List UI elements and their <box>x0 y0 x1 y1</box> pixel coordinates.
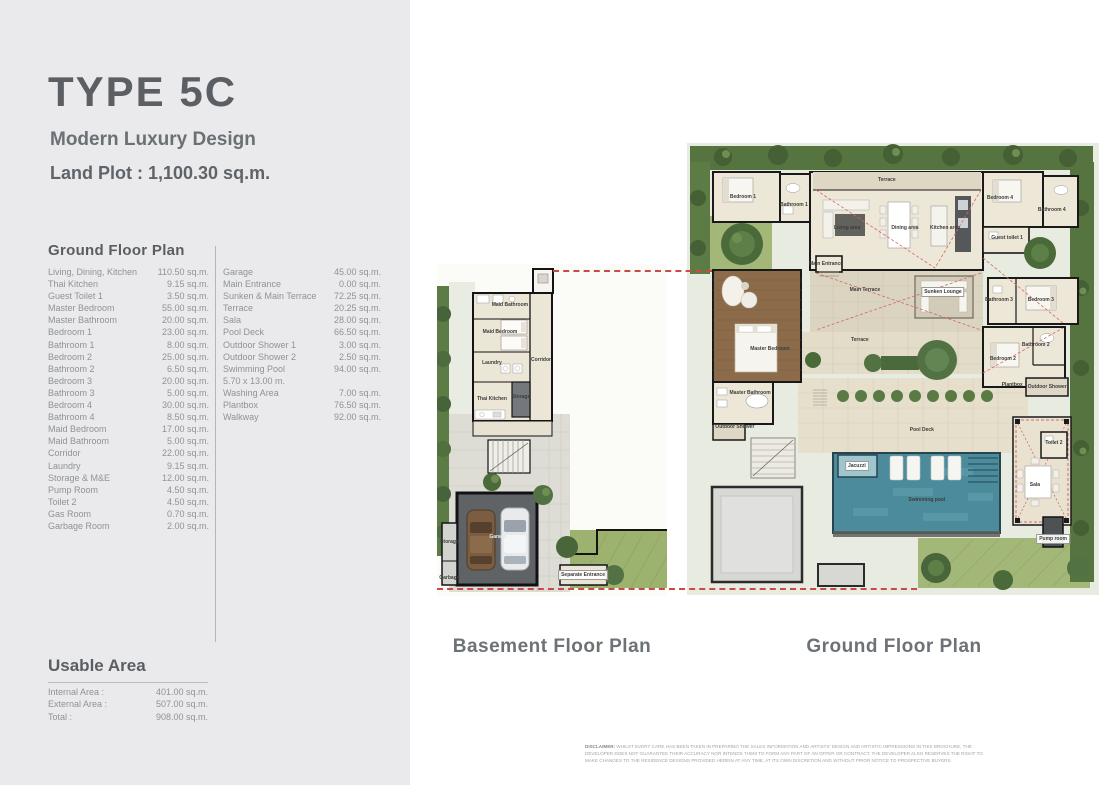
room-label: Dining area <box>891 225 918 231</box>
area-row: Plantbox76.50 sq.m. <box>223 399 381 411</box>
area-row-value: 401.00 sq.m. <box>156 686 208 698</box>
area-row-label: Terrace <box>223 302 253 314</box>
area-row-value: 20.25 sq.m. <box>334 302 381 314</box>
room-label: Outdoor Shower <box>715 424 754 430</box>
area-row-label: Washing Area <box>223 387 279 399</box>
area-row-label: Living, Dining, Kitchen <box>48 266 137 278</box>
room-label: Separate Entrance <box>558 570 608 580</box>
area-row-value: 22.00 sq.m. <box>162 447 209 459</box>
area-row-label: Laundry <box>48 460 81 472</box>
area-row-label: Outdoor Shower 2 <box>223 351 296 363</box>
room-label: Garbage <box>439 575 459 581</box>
area-row: Thai Kitchen9.15 sq.m. <box>48 278 209 290</box>
room-label: Sunken Lounge <box>921 287 965 297</box>
area-row-label: Garage <box>223 266 253 278</box>
area-table-heading: Ground Floor Plan <box>48 242 185 259</box>
area-row-value: 17.00 sq.m. <box>162 423 209 435</box>
room-label: Maid Bathroom <box>492 302 528 308</box>
area-row-label: Sunken & Main Terrace <box>223 290 316 302</box>
room-label: Corridor <box>531 357 551 363</box>
area-row: Laundry9.15 sq.m. <box>48 460 209 472</box>
room-label: Garage <box>489 534 506 540</box>
room-label: Terrace <box>878 177 896 183</box>
area-row-value: 0.70 sq.m. <box>167 508 209 520</box>
room-label: Bathroom 3 <box>985 297 1013 303</box>
room-label: Jacuzzi <box>845 461 869 471</box>
area-row-value: 4.50 sq.m. <box>167 496 209 508</box>
area-row-value: 2.00 sq.m. <box>167 520 209 532</box>
area-row-label: Plantbox <box>223 399 258 411</box>
area-row: Bedroom 430.00 sq.m. <box>48 399 209 411</box>
area-row: Pool Deck66.50 sq.m. <box>223 326 381 338</box>
area-row-value: 0.00 sq.m. <box>339 278 381 290</box>
area-row: 5.70 x 13.00 m. <box>223 375 381 387</box>
ground-plan-caption: Ground Floor Plan <box>683 636 1105 658</box>
section-line-dashed <box>553 270 712 272</box>
area-row-value: 72.25 sq.m. <box>334 290 381 302</box>
usable-area-rule <box>48 682 208 683</box>
room-label: Master Bathroom <box>730 390 771 396</box>
area-row-value: 66.50 sq.m. <box>334 326 381 338</box>
area-row-label: Outdoor Shower 1 <box>223 339 296 351</box>
area-row: Garbage Room2.00 sq.m. <box>48 520 209 532</box>
area-row: Guest Toilet 13.50 sq.m. <box>48 290 209 302</box>
area-row: Bathroom 18.00 sq.m. <box>48 339 209 351</box>
area-row-label: Guest Toilet 1 <box>48 290 103 302</box>
area-row-value: 20.00 sq.m. <box>162 375 209 387</box>
room-label: Bedroom 4 <box>987 195 1013 201</box>
area-row-label: Swimming Pool <box>223 363 285 375</box>
area-row: Walkway92.00 sq.m. <box>223 411 381 423</box>
area-row: Sunken & Main Terrace72.25 sq.m. <box>223 290 381 302</box>
room-label: Master Bedroom <box>750 346 789 352</box>
area-row-label: Maid Bathroom <box>48 435 109 447</box>
area-row-value: 4.50 sq.m. <box>167 484 209 496</box>
area-row-value: 110.50 sq.m. <box>158 266 209 278</box>
area-row-value: 94.00 sq.m. <box>334 363 381 375</box>
area-row: Gas Room0.70 sq.m. <box>48 508 209 520</box>
basement-plan-caption: Basement Floor Plan <box>437 636 667 658</box>
area-row: Corridor22.00 sq.m. <box>48 447 209 459</box>
room-label: Bedroom 1 <box>730 194 756 200</box>
area-row-label: Bathroom 1 <box>48 339 95 351</box>
area-row: Master Bathroom20.00 sq.m. <box>48 314 209 326</box>
room-label: Outdoor Shower <box>1028 384 1067 390</box>
area-row-label: Internal Area : <box>48 686 104 698</box>
area-row-label: Total : <box>48 711 72 723</box>
basement-labels: Maid BathroomMaid BedroomLaundryCorridor… <box>437 264 667 596</box>
room-label: Pool Deck <box>910 427 934 433</box>
area-row-label: Maid Bedroom <box>48 423 107 435</box>
area-row: Bathroom 26.50 sq.m. <box>48 363 209 375</box>
area-row-value: 76.50 sq.m. <box>334 399 381 411</box>
area-row-label: Bathroom 4 <box>48 411 95 423</box>
disclaimer-text: DISCLAIMER: WHILST EVERY CARE HAS BEEN T… <box>585 744 991 765</box>
area-row-value: 9.15 sq.m. <box>167 278 209 290</box>
room-label: Bedroom 2 <box>990 356 1016 362</box>
room-label: Maid Bedroom <box>483 329 518 335</box>
area-row-label: Toilet 2 <box>48 496 77 508</box>
usable-area-table: Internal Area :401.00 sq.m.External Area… <box>48 686 208 723</box>
area-row-value: 55.00 sq.m. <box>162 302 209 314</box>
area-row-label: 5.70 x 13.00 m. <box>223 375 285 387</box>
area-row: Main Entrance0.00 sq.m. <box>223 278 381 290</box>
area-table-col2: Garage45.00 sq.m.Main Entrance0.00 sq.m.… <box>223 266 381 423</box>
area-row-label: Pool Deck <box>223 326 264 338</box>
ground-floor-plan: TerraceBedroom 1Bathroom 1Living areaDin… <box>683 138 1105 622</box>
area-row: Maid Bedroom17.00 sq.m. <box>48 423 209 435</box>
area-row-label: Sala <box>223 314 241 326</box>
area-row: Terrace20.25 sq.m. <box>223 302 381 314</box>
room-label: Laundry <box>482 360 502 366</box>
area-row-label: Main Entrance <box>223 278 281 290</box>
area-row-value: 7.00 sq.m. <box>339 387 381 399</box>
room-label: Storage <box>512 394 531 400</box>
area-row: Living, Dining, Kitchen110.50 sq.m. <box>48 266 209 278</box>
column-divider <box>215 246 216 642</box>
area-row-label: External Area : <box>48 698 107 710</box>
area-row-label: Walkway <box>223 411 259 423</box>
area-row-value: 25.00 sq.m. <box>162 351 209 363</box>
area-row-label: Bathroom 2 <box>48 363 95 375</box>
area-row: Internal Area :401.00 sq.m. <box>48 686 208 698</box>
room-label: Sala <box>1030 482 1040 488</box>
area-row-label: Bedroom 4 <box>48 399 92 411</box>
area-row-value: 23.00 sq.m. <box>162 326 209 338</box>
area-row-label: Bedroom 1 <box>48 326 92 338</box>
area-row-value: 9.15 sq.m. <box>167 460 209 472</box>
usable-area-heading: Usable Area <box>48 656 146 676</box>
brochure-page: TYPE 5C Modern Luxury Design Land Plot :… <box>0 0 1111 785</box>
property-line-dashed <box>437 588 917 590</box>
area-row-value: 92.00 sq.m. <box>334 411 381 423</box>
area-row: Pump Room4.50 sq.m. <box>48 484 209 496</box>
room-label: Living area <box>834 225 860 231</box>
area-row-value: 6.50 sq.m. <box>167 363 209 375</box>
area-row-value: 8.00 sq.m. <box>167 339 209 351</box>
page-title: TYPE 5C <box>48 68 237 116</box>
disclaimer-label: DISCLAIMER: <box>585 744 615 749</box>
area-row: Toilet 24.50 sq.m. <box>48 496 209 508</box>
area-row-value: 2.50 sq.m. <box>339 351 381 363</box>
area-row-label: Bedroom 3 <box>48 375 92 387</box>
area-row: Washing Area7.00 sq.m. <box>223 387 381 399</box>
area-row: Outdoor Shower 13.00 sq.m. <box>223 339 381 351</box>
ground-labels: TerraceBedroom 1Bathroom 1Living areaDin… <box>683 138 1105 622</box>
room-label: Swimming pool <box>908 497 945 503</box>
area-row-label: Master Bedroom <box>48 302 115 314</box>
area-row-value: 5.00 sq.m. <box>167 387 209 399</box>
room-label: Main Terrace <box>850 287 880 293</box>
area-row-value: 45.00 sq.m. <box>334 266 381 278</box>
area-row: External Area :507.00 sq.m. <box>48 698 208 710</box>
area-row-label: Pump Room <box>48 484 98 496</box>
page-subtitle: Modern Luxury Design <box>50 129 256 151</box>
area-row: Bathroom 35.00 sq.m. <box>48 387 209 399</box>
area-row-value: 20.00 sq.m. <box>162 314 209 326</box>
area-row: Sala28.00 sq.m. <box>223 314 381 326</box>
area-row-label: Bathroom 3 <box>48 387 95 399</box>
room-label: Toilet 2 <box>1045 440 1062 446</box>
land-plot-size: Land Plot : 1,100.30 sq.m. <box>50 163 270 184</box>
area-row-label: Gas Room <box>48 508 91 520</box>
area-row-value: 908.00 sq.m. <box>156 711 208 723</box>
room-label: Main Entrance <box>809 261 843 267</box>
area-row: Bathroom 48.50 sq.m. <box>48 411 209 423</box>
room-label: Guest toilet 1 <box>991 235 1023 241</box>
basement-floor-plan: Maid BathroomMaid BedroomLaundryCorridor… <box>437 264 667 596</box>
area-row: Bedroom 123.00 sq.m. <box>48 326 209 338</box>
area-row-value: 30.00 sq.m. <box>162 399 209 411</box>
area-row: Swimming Pool94.00 sq.m. <box>223 363 381 375</box>
area-row-value: 5.00 sq.m. <box>167 435 209 447</box>
area-row-value: 8.50 sq.m. <box>167 411 209 423</box>
area-row-label: Bedroom 2 <box>48 351 92 363</box>
area-row: Total :908.00 sq.m. <box>48 711 208 723</box>
area-row: Maid Bathroom5.00 sq.m. <box>48 435 209 447</box>
area-row-value: 28.00 sq.m. <box>334 314 381 326</box>
area-row-value: 3.00 sq.m. <box>339 339 381 351</box>
room-label: Bathroom 1 <box>780 202 808 208</box>
area-row: Storage & M&E12.00 sq.m. <box>48 472 209 484</box>
area-row: Master Bedroom55.00 sq.m. <box>48 302 209 314</box>
room-label: Pump room <box>1036 534 1070 544</box>
area-row-label: Corridor <box>48 447 81 459</box>
room-label: Bathroom 2 <box>1022 342 1050 348</box>
area-row-value: 12.00 sq.m. <box>162 472 209 484</box>
area-row: Bedroom 320.00 sq.m. <box>48 375 209 387</box>
area-row-label: Storage & M&E <box>48 472 110 484</box>
room-label: Bedroom 3 <box>1028 297 1054 303</box>
area-row-label: Thai Kitchen <box>48 278 98 290</box>
area-row-label: Garbage Room <box>48 520 110 532</box>
info-sidebar: TYPE 5C Modern Luxury Design Land Plot :… <box>0 0 410 785</box>
area-row: Garage45.00 sq.m. <box>223 266 381 278</box>
room-label: Thai Kitchen <box>477 396 507 402</box>
area-table-col1: Living, Dining, Kitchen110.50 sq.m.Thai … <box>48 266 209 532</box>
room-label: Plantbox <box>1002 382 1023 388</box>
area-row: Outdoor Shower 22.50 sq.m. <box>223 351 381 363</box>
area-row: Bedroom 225.00 sq.m. <box>48 351 209 363</box>
room-label: Bathroom 4 <box>1038 207 1066 213</box>
area-row-value: 3.50 sq.m. <box>167 290 209 302</box>
area-row-value: 507.00 sq.m. <box>156 698 208 710</box>
room-label: Terrace <box>851 337 869 343</box>
room-label: Storage <box>440 539 459 545</box>
room-label: Kitchen area <box>930 225 960 231</box>
area-row-label: Master Bathroom <box>48 314 117 326</box>
